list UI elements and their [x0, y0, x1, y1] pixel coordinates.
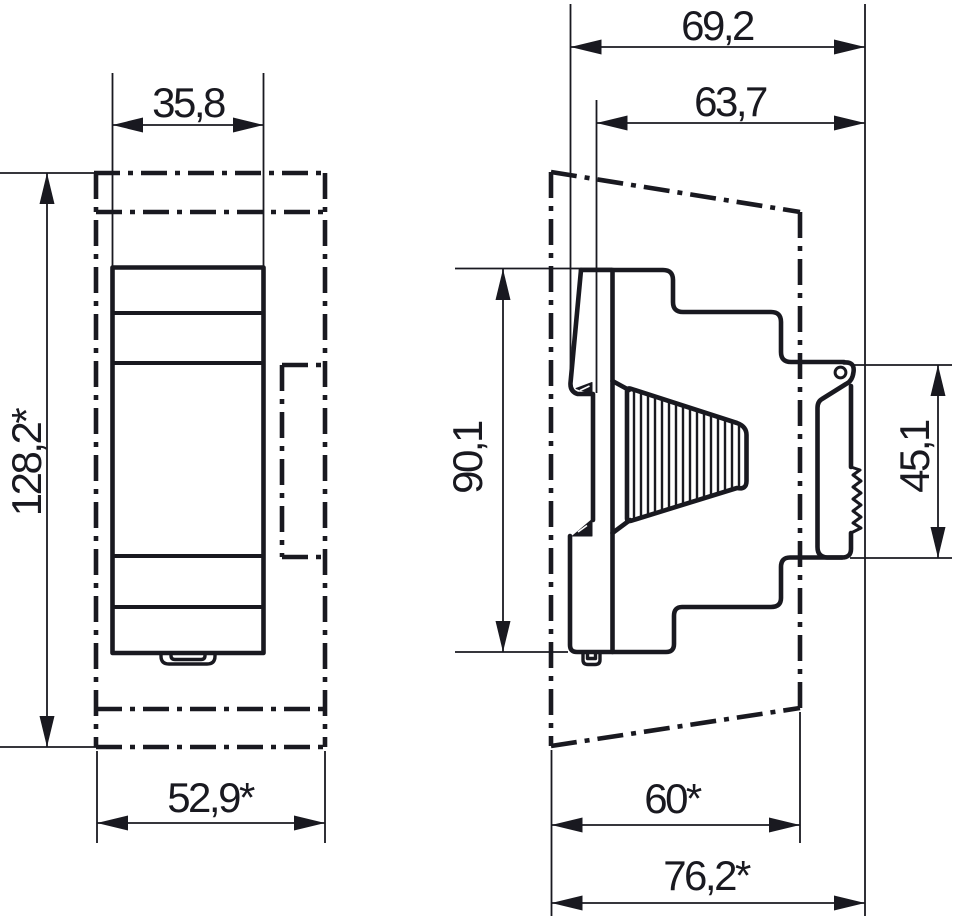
dim-front-base-width: 52,9*: [97, 751, 325, 843]
front-housing: [113, 268, 264, 665]
dim-side-total-depth-label: 69,2: [681, 2, 754, 49]
technical-drawing: 35,8 128,2* 52,9*: [0, 0, 960, 922]
front-cover-swing-outline: [282, 365, 327, 557]
dim-side-body-depth-label: 63,7: [694, 78, 767, 125]
dim-side-body-height: 90,1: [444, 269, 612, 653]
dim-side-lower-depth-label: 60*: [644, 775, 702, 822]
dim-side-rail-section-label: 45,1: [891, 420, 938, 493]
dimension-drawing-page: 35,8 128,2* 52,9*: [0, 0, 960, 922]
din-clip-pivot: [818, 362, 854, 557]
side-view: 69,2 63,7 90,1 45,1: [444, 2, 952, 916]
front-envelope-dashdot: [94, 173, 327, 747]
side-wedge: [627, 388, 747, 521]
dim-front-width: 35,8: [113, 73, 264, 266]
front-view: 35,8 128,2* 52,9*: [0, 73, 327, 843]
cover-hook-bottom: [573, 520, 593, 537]
dim-front-width-label: 35,8: [152, 79, 225, 126]
dim-side-body-height-label: 90,1: [444, 421, 491, 494]
rail-serration: [851, 467, 861, 533]
dim-side-body-depth: 63,7: [597, 78, 866, 393]
dim-front-height: 128,2*: [0, 173, 97, 747]
dim-front-base-width-label: 52,9*: [167, 774, 255, 821]
side-housing-profile: [570, 270, 861, 665]
dim-side-overall-depth: 76,2*: [552, 852, 866, 911]
terminal-cover-top: [570, 270, 592, 394]
dim-front-height-label: 128,2*: [3, 408, 50, 517]
dim-side-overall-depth-label: 76,2*: [663, 852, 751, 899]
